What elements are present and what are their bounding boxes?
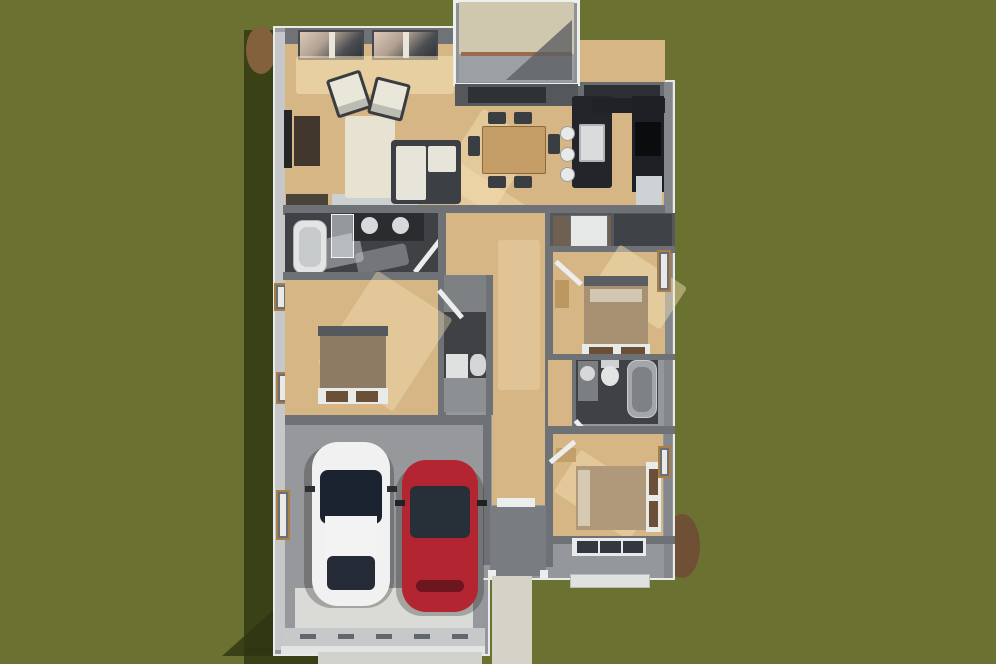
hall-bath-floor-shaded (444, 378, 490, 412)
refrigerator (636, 176, 662, 208)
barstool (560, 167, 575, 182)
closet-door-white (570, 215, 608, 247)
bed2-headboard (584, 276, 648, 286)
bed1-blanket (320, 336, 386, 388)
driveway (318, 652, 482, 664)
entry-recess (490, 506, 546, 576)
dining-chair (514, 112, 532, 124)
garage-door-dashes (300, 634, 468, 639)
hall-bath-toilet (470, 354, 486, 376)
dining-table (482, 126, 546, 174)
wall-garage-top (285, 415, 490, 425)
red-car-trunk (416, 580, 464, 592)
sliding-glass-door (468, 87, 546, 103)
red-car-windshield (410, 486, 470, 538)
bed1-foot-panel (356, 391, 378, 402)
hall-bath-sink (446, 354, 468, 378)
dining-chair (488, 176, 506, 188)
front-door (497, 498, 535, 507)
barstool (560, 147, 575, 162)
bed3-foot-panel (649, 501, 658, 527)
front-walkway (492, 576, 532, 664)
white-car-roof (325, 516, 377, 558)
window-bedroom3-right (658, 446, 671, 478)
sofa-cushions-chaise (428, 146, 456, 172)
white-car-rear-glass (327, 556, 375, 590)
shower-glass-panel (331, 214, 354, 258)
bath2-toilet (601, 366, 619, 386)
dining-chair (514, 176, 532, 188)
wall-masterbath-bed (283, 272, 443, 280)
front-stoop (570, 574, 650, 588)
window-garage-left (276, 490, 290, 540)
bathtub-master-basin (299, 227, 321, 267)
bath2-tub-basin (632, 367, 652, 412)
vanity-basin (392, 217, 409, 234)
bed3-pillow (578, 470, 590, 526)
red-car-mirror (477, 500, 487, 506)
bed3-foot-panel (649, 469, 658, 495)
red-car-mirror (395, 500, 405, 506)
sun-patch-hall (498, 240, 540, 390)
wall-hallbath-right (486, 275, 493, 415)
dining-chair (468, 136, 480, 156)
house-shadow-left (244, 30, 276, 654)
stove-cooktop (635, 122, 661, 156)
tv-console (294, 116, 320, 166)
closet-dark-bay (614, 214, 672, 248)
dining-chair (488, 112, 506, 124)
vanity-basin (361, 217, 378, 234)
wall-bath2-bed3 (548, 426, 675, 434)
bath2-basin (580, 366, 595, 381)
wall-tv (284, 110, 292, 168)
island-double-sink (579, 124, 605, 162)
bush-left (246, 26, 276, 74)
window-bedroom3-bottom (572, 538, 646, 556)
window-bedroom2-right (657, 250, 671, 292)
bed1-foot-panel (326, 391, 348, 402)
barstool (560, 126, 575, 141)
bedroom2-dresser (555, 280, 569, 308)
area-rug (345, 116, 395, 198)
bed2-pillow (590, 289, 642, 302)
floor-plan-stage (0, 0, 996, 664)
entry-post (540, 570, 548, 578)
white-car-mirror (305, 486, 315, 492)
sofa-cushions-long (396, 146, 426, 200)
dining-chair (548, 134, 560, 154)
bed1-headboard (318, 326, 388, 336)
right-outer-wall (664, 82, 672, 578)
